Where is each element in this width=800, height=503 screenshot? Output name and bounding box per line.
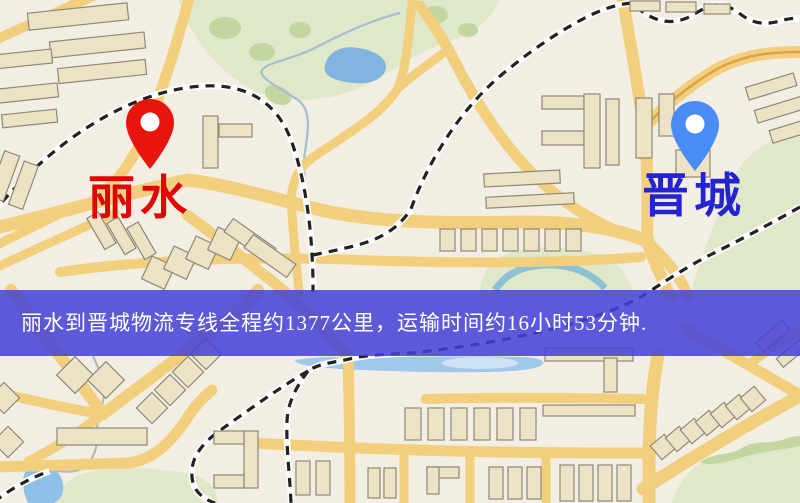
route-info-banner: 丽水到晋城物流专线全程约1377公里，运输时间约16小时53分钟. — [0, 290, 800, 356]
map-canvas[interactable] — [0, 0, 800, 503]
map-screenshot: 丽水 晋城 丽水到晋城物流专线全程约1377公里，运输时间约16小时53分钟. — [0, 0, 800, 503]
